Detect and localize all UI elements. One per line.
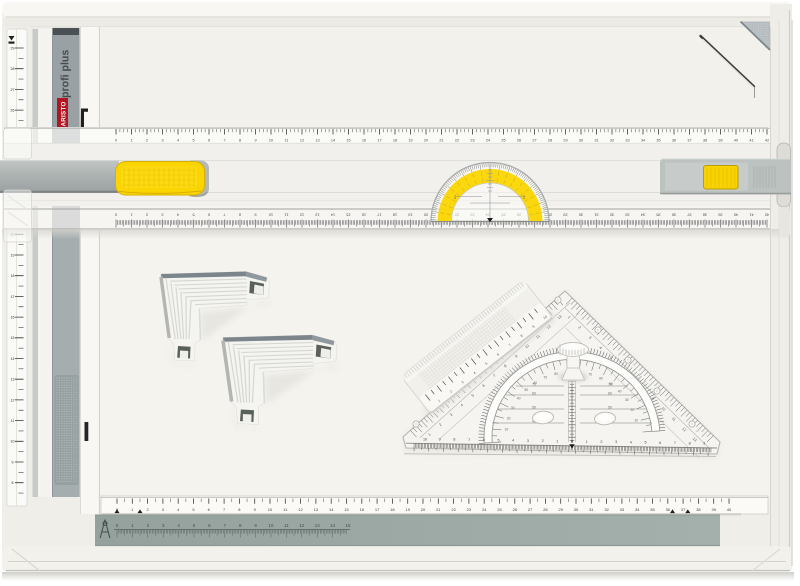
svg-text:7: 7: [468, 438, 470, 442]
svg-text:37: 37: [681, 507, 686, 512]
svg-text:profi plus: profi plus: [60, 50, 72, 98]
svg-text:2: 2: [146, 212, 148, 217]
svg-text:14: 14: [331, 138, 335, 142]
svg-text:20: 20: [630, 408, 634, 412]
svg-text:70: 70: [608, 383, 612, 387]
svg-text:28: 28: [543, 507, 548, 512]
svg-text:24: 24: [486, 138, 490, 142]
svg-text:10: 10: [269, 523, 274, 528]
svg-text:32: 32: [610, 138, 614, 142]
svg-text:27: 27: [528, 507, 533, 512]
svg-text:30: 30: [511, 406, 515, 410]
svg-text:10: 10: [268, 507, 273, 512]
svg-text:37: 37: [687, 212, 691, 217]
svg-text:31: 31: [589, 507, 594, 512]
svg-text:39: 39: [711, 507, 716, 512]
svg-text:1: 1: [130, 138, 132, 142]
svg-text:16: 16: [362, 138, 366, 142]
svg-text:10: 10: [423, 437, 427, 441]
svg-text:26: 26: [513, 507, 518, 512]
svg-text:29: 29: [563, 212, 567, 217]
svg-text:25: 25: [497, 507, 502, 512]
svg-text:19: 19: [408, 212, 412, 217]
svg-text:32: 32: [604, 507, 609, 512]
svg-text:13: 13: [315, 523, 320, 528]
svg-text:33: 33: [625, 212, 629, 217]
svg-text:39: 39: [718, 212, 722, 217]
svg-text:17: 17: [377, 138, 381, 142]
svg-text:11: 11: [11, 419, 15, 423]
svg-text:38: 38: [703, 138, 707, 142]
svg-text:60: 60: [599, 376, 603, 380]
svg-text:18: 18: [393, 138, 397, 142]
svg-text:41: 41: [749, 212, 753, 217]
svg-text:26: 26: [517, 138, 521, 142]
svg-text:9: 9: [12, 460, 14, 464]
svg-text:17: 17: [377, 212, 381, 217]
svg-text:36: 36: [672, 138, 676, 142]
svg-text:60: 60: [532, 392, 536, 396]
svg-text:7: 7: [223, 212, 225, 217]
svg-text:42: 42: [765, 138, 769, 142]
svg-text:29: 29: [563, 138, 567, 142]
svg-text:41: 41: [749, 138, 753, 142]
svg-text:39: 39: [718, 138, 722, 142]
svg-text:ARISTO: ARISTO: [61, 101, 68, 126]
svg-text:15: 15: [346, 138, 350, 142]
svg-text:19: 19: [405, 507, 410, 512]
svg-text:3: 3: [615, 440, 617, 444]
svg-text:10: 10: [11, 440, 15, 444]
svg-text:28: 28: [548, 138, 552, 142]
svg-text:5: 5: [192, 212, 194, 217]
svg-text:4: 4: [512, 439, 514, 443]
svg-text:3: 3: [161, 212, 163, 217]
svg-text:11: 11: [284, 523, 289, 528]
svg-text:0: 0: [115, 138, 117, 142]
svg-text:28: 28: [11, 67, 15, 71]
svg-text:2: 2: [600, 440, 602, 444]
svg-text:2: 2: [146, 138, 148, 142]
svg-text:8: 8: [453, 438, 455, 442]
svg-text:35: 35: [650, 507, 655, 512]
svg-text:17: 17: [11, 295, 15, 299]
svg-text:0: 0: [571, 440, 573, 444]
svg-text:35: 35: [656, 212, 660, 217]
svg-text:6: 6: [208, 138, 210, 142]
svg-text:32: 32: [610, 212, 614, 217]
svg-text:40: 40: [727, 507, 732, 512]
svg-text:27: 27: [11, 88, 15, 92]
svg-text:1: 1: [130, 212, 132, 217]
svg-text:70: 70: [543, 376, 547, 380]
svg-text:13: 13: [315, 138, 319, 142]
svg-text:60: 60: [608, 392, 612, 396]
svg-text:34: 34: [641, 138, 645, 142]
svg-text:10: 10: [634, 418, 638, 422]
svg-text:33: 33: [625, 138, 629, 142]
svg-text:3: 3: [161, 138, 163, 142]
svg-text:15: 15: [11, 336, 15, 340]
svg-text:12: 12: [300, 138, 304, 142]
svg-text:33: 33: [620, 507, 625, 512]
svg-text:9: 9: [439, 438, 441, 442]
svg-text:20: 20: [507, 417, 511, 421]
svg-text:30: 30: [574, 507, 579, 512]
svg-text:5: 5: [644, 441, 646, 445]
svg-text:30: 30: [625, 398, 629, 402]
svg-text:4: 4: [177, 138, 179, 142]
svg-text:11: 11: [285, 138, 289, 142]
svg-text:31: 31: [594, 138, 598, 142]
svg-text:18: 18: [393, 212, 397, 217]
svg-text:21: 21: [436, 507, 441, 512]
svg-text:9: 9: [254, 212, 256, 217]
svg-text:38: 38: [703, 212, 707, 217]
svg-text:19: 19: [11, 253, 15, 257]
svg-text:40: 40: [618, 389, 622, 393]
svg-text:25: 25: [501, 138, 505, 142]
svg-text:80: 80: [554, 372, 558, 376]
svg-text:42: 42: [765, 212, 769, 217]
svg-text:16: 16: [362, 212, 366, 217]
svg-text:12: 12: [299, 523, 304, 528]
svg-text:20: 20: [421, 507, 426, 512]
svg-text:1: 1: [586, 440, 588, 444]
svg-text:14: 14: [330, 523, 335, 528]
svg-text:17: 17: [375, 507, 380, 512]
svg-text:16: 16: [360, 507, 365, 512]
svg-text:3: 3: [527, 439, 529, 443]
svg-text:7: 7: [223, 138, 225, 142]
svg-text:38: 38: [696, 507, 701, 512]
svg-text:24: 24: [482, 507, 487, 512]
svg-text:15: 15: [346, 523, 351, 528]
svg-text:40: 40: [517, 397, 521, 401]
svg-text:22: 22: [451, 507, 456, 512]
svg-text:10: 10: [505, 427, 509, 431]
svg-text:19: 19: [408, 138, 412, 142]
svg-text:5: 5: [497, 438, 499, 442]
svg-text:70: 70: [532, 383, 536, 387]
svg-text:9: 9: [703, 442, 705, 446]
svg-text:18: 18: [390, 507, 395, 512]
svg-text:14: 14: [329, 507, 334, 512]
svg-text:16: 16: [11, 316, 15, 320]
svg-text:13: 13: [11, 378, 15, 382]
svg-text:50: 50: [532, 406, 536, 410]
svg-text:29: 29: [11, 46, 15, 50]
svg-text:36: 36: [672, 212, 676, 217]
svg-text:30: 30: [579, 138, 583, 142]
svg-text:23: 23: [467, 507, 472, 512]
svg-text:14: 14: [11, 357, 15, 361]
svg-text:7: 7: [674, 441, 676, 445]
svg-text:9: 9: [254, 138, 256, 142]
svg-text:20: 20: [424, 138, 428, 142]
svg-text:10: 10: [269, 138, 273, 142]
svg-text:27: 27: [532, 138, 536, 142]
svg-text:22: 22: [455, 138, 459, 142]
svg-text:40: 40: [734, 138, 738, 142]
svg-text:12: 12: [298, 507, 303, 512]
svg-text:29: 29: [558, 507, 563, 512]
svg-text:21: 21: [439, 138, 443, 142]
svg-text:13: 13: [314, 507, 319, 512]
svg-text:23: 23: [470, 138, 474, 142]
svg-text:36: 36: [666, 507, 671, 512]
svg-text:1: 1: [556, 439, 558, 443]
svg-text:6: 6: [483, 438, 485, 442]
svg-text:15: 15: [346, 212, 350, 217]
svg-text:18: 18: [11, 274, 15, 278]
svg-text:5: 5: [192, 138, 194, 142]
svg-text:6: 6: [208, 212, 210, 217]
svg-text:6: 6: [659, 441, 661, 445]
svg-text:35: 35: [656, 138, 660, 142]
svg-text:34: 34: [635, 507, 640, 512]
svg-text:50: 50: [524, 388, 528, 392]
svg-text:12: 12: [300, 212, 304, 217]
svg-text:8: 8: [689, 441, 691, 445]
svg-text:2: 2: [542, 439, 544, 443]
svg-text:31: 31: [594, 212, 598, 217]
svg-text:11: 11: [284, 212, 288, 217]
svg-text:50: 50: [608, 406, 612, 410]
svg-text:4: 4: [630, 441, 632, 445]
svg-text:8: 8: [239, 138, 241, 142]
svg-text:13: 13: [315, 212, 319, 217]
svg-text:8: 8: [12, 481, 14, 485]
svg-text:37: 37: [687, 138, 691, 142]
svg-text:70: 70: [588, 372, 592, 376]
svg-text:26: 26: [11, 109, 15, 113]
svg-text:15: 15: [344, 507, 349, 512]
svg-text:8: 8: [239, 212, 241, 217]
svg-text:12: 12: [11, 398, 15, 402]
